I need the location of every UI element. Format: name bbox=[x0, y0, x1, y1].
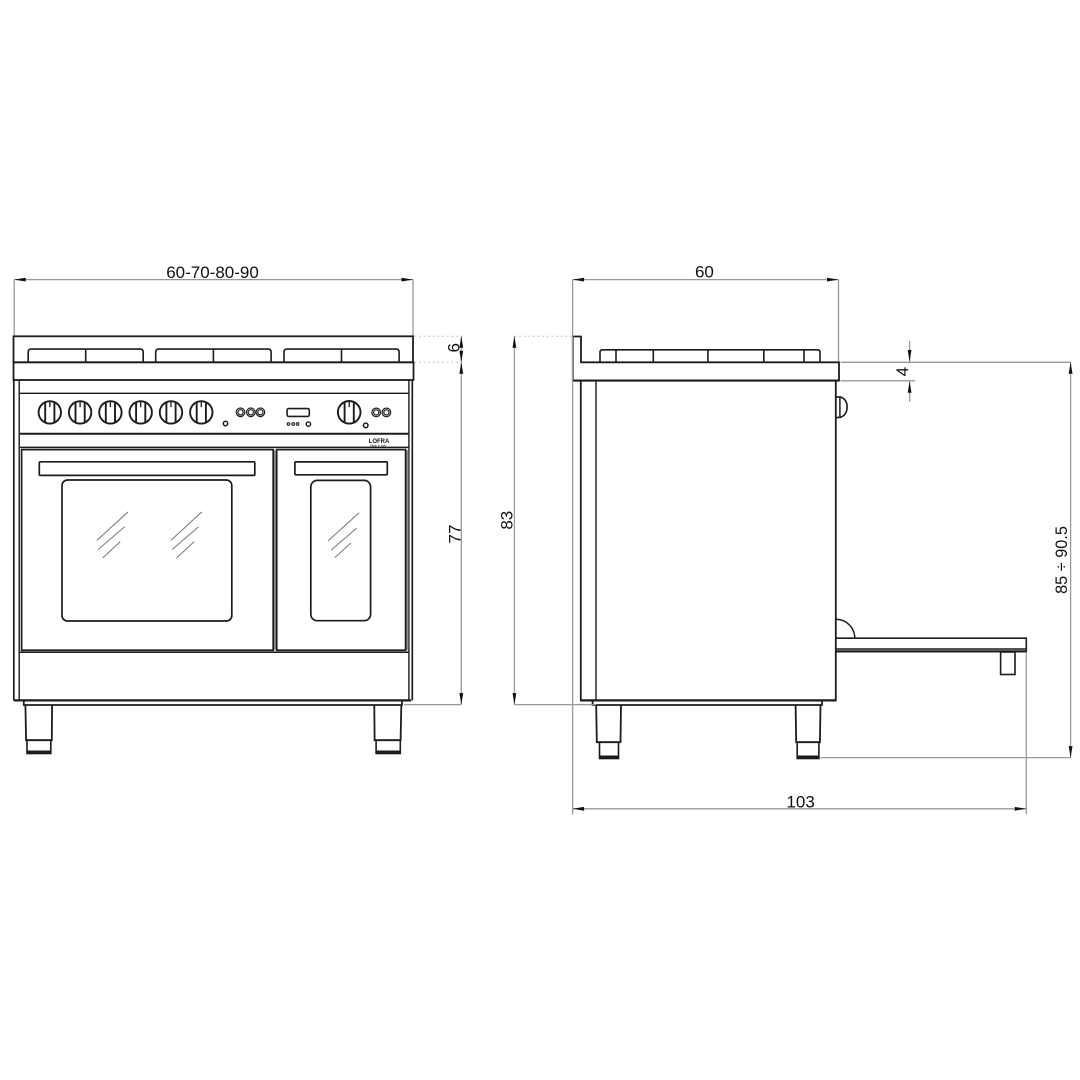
svg-text:6: 6 bbox=[444, 343, 463, 352]
svg-text:77: 77 bbox=[445, 525, 464, 544]
svg-text:4: 4 bbox=[893, 367, 912, 376]
svg-text:103: 103 bbox=[786, 792, 814, 811]
svg-text:60-70-80-90: 60-70-80-90 bbox=[166, 263, 259, 282]
svg-text:83: 83 bbox=[498, 511, 517, 530]
svg-text:85 ÷ 90.5: 85 ÷ 90.5 bbox=[1053, 526, 1071, 594]
svg-text:60: 60 bbox=[695, 263, 714, 282]
